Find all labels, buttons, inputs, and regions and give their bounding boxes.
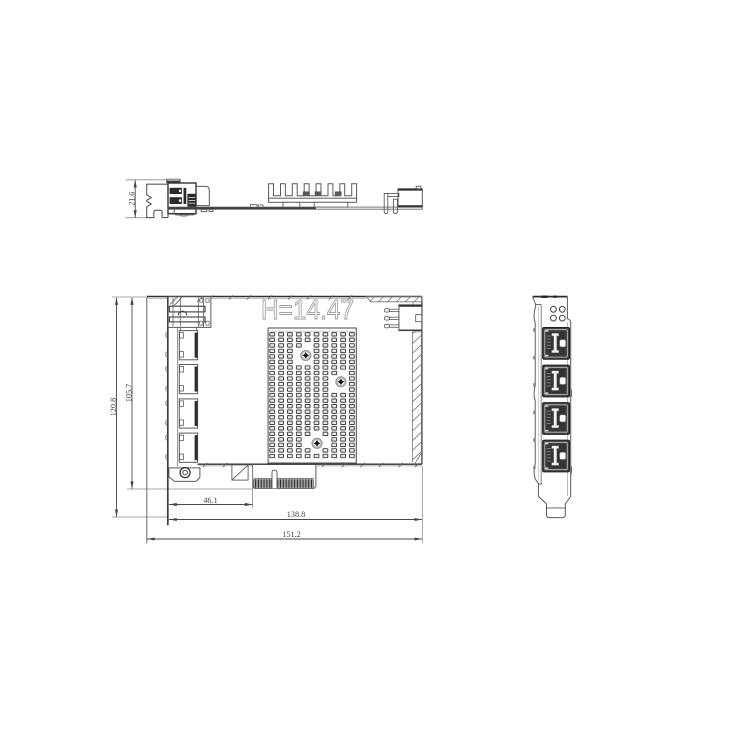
svg-text:46.1: 46.1 [203,496,217,505]
svg-text:21.6: 21.6 [128,192,137,206]
svg-text:105.7: 105.7 [125,384,134,402]
svg-text:138.8: 138.8 [287,510,305,519]
svg-text:H=14.47: H=14.47 [261,293,354,325]
svg-text:120.8: 120.8 [109,398,118,416]
svg-text:151.2: 151.2 [282,530,300,539]
